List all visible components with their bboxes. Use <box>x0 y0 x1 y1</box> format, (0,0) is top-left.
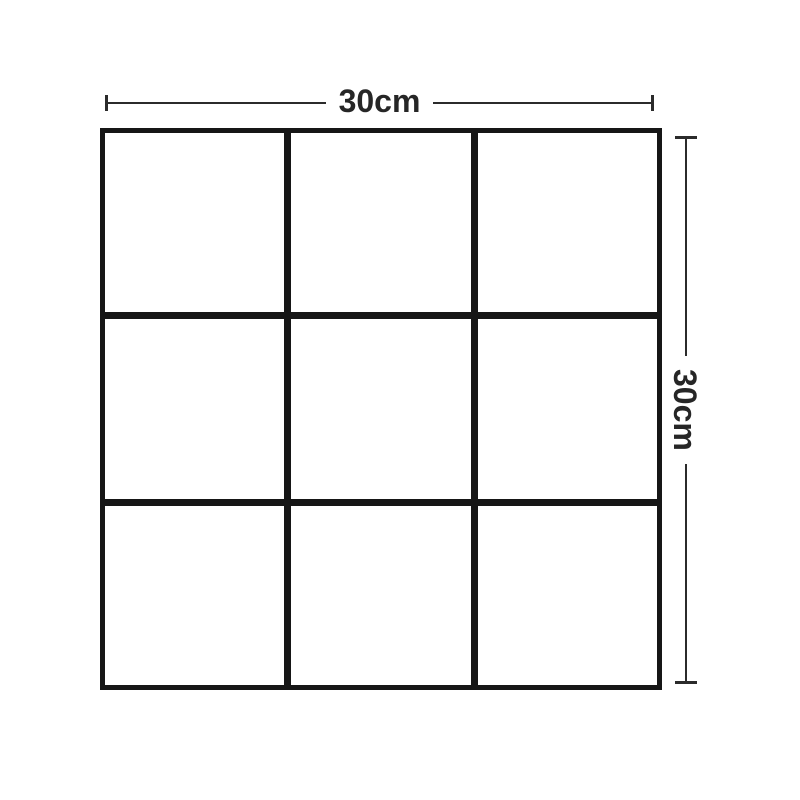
dimension-tick-bottom <box>675 681 697 684</box>
height-dimension: 30cm <box>668 136 704 684</box>
grid-cell <box>291 319 470 498</box>
grid-cell <box>291 133 470 312</box>
height-dimension-label: 30cm <box>669 356 701 464</box>
dimension-tick-right <box>651 95 654 111</box>
grid-cell <box>105 319 284 498</box>
grid-cell <box>478 319 657 498</box>
grid-cell <box>105 133 284 312</box>
dimension-line-segment <box>433 102 651 104</box>
grid-cell <box>105 506 284 685</box>
dimension-line-segment <box>108 102 326 104</box>
tile-grid <box>100 128 662 690</box>
grid-cell <box>291 506 470 685</box>
dimension-line-segment <box>685 464 687 681</box>
width-dimension: 30cm <box>105 85 654 121</box>
grid-cell <box>478 506 657 685</box>
width-dimension-label: 30cm <box>326 85 434 117</box>
grid-cell <box>478 133 657 312</box>
dimension-line-segment <box>685 139 687 356</box>
